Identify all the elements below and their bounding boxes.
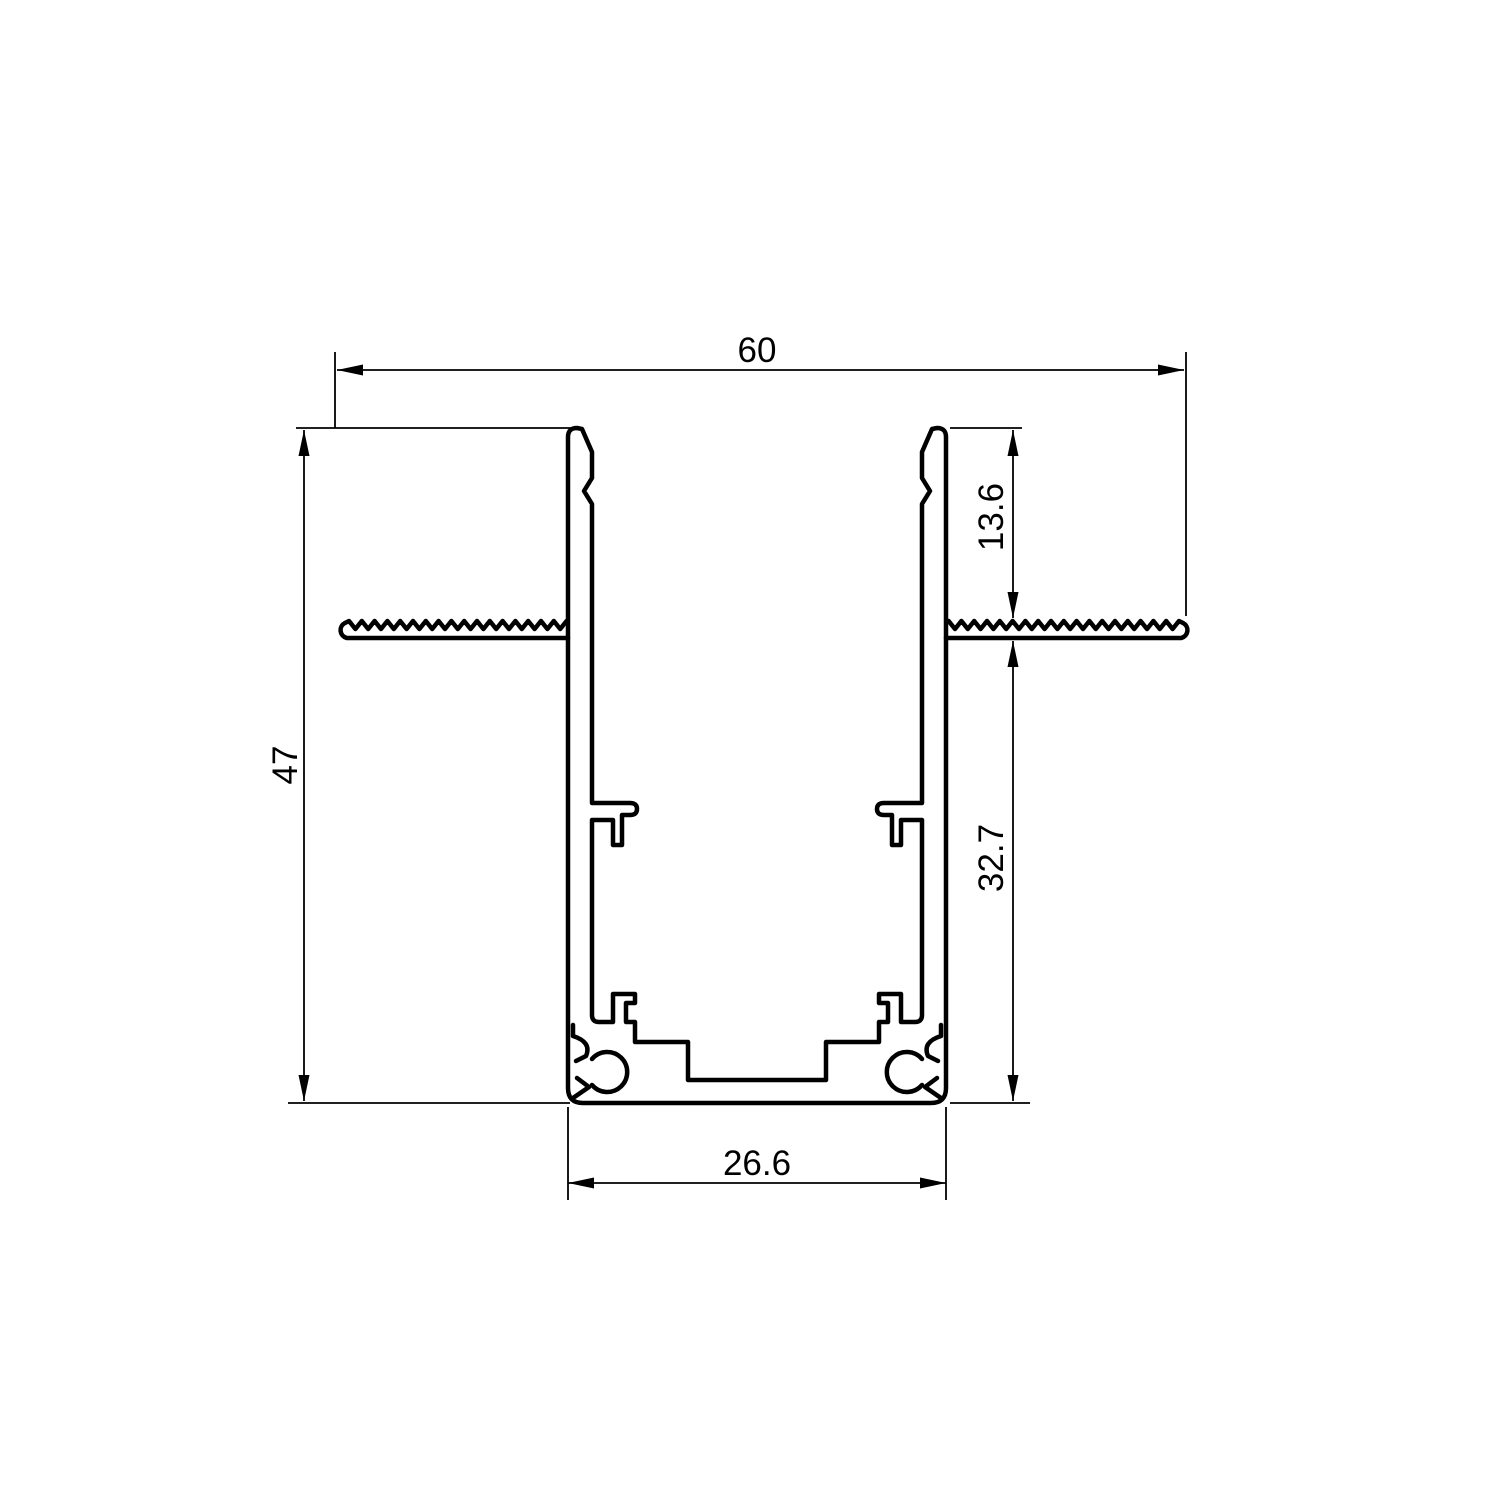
right-screw-boss-circle bbox=[887, 1052, 922, 1092]
dimension-base-width: 26.6 bbox=[568, 1107, 946, 1200]
arrow-left bbox=[337, 365, 363, 376]
dimension-flange-depth: 13.6 bbox=[950, 428, 1022, 618]
arrow-right bbox=[920, 1178, 946, 1189]
channel-body-outline bbox=[568, 428, 946, 1103]
left-screw-boss-lower-lip bbox=[573, 1078, 589, 1098]
left-screw-boss bbox=[573, 1025, 627, 1098]
dimension-body-depth: 32.7 bbox=[950, 641, 1030, 1103]
right-screw-boss bbox=[887, 1025, 941, 1098]
arrow-top bbox=[299, 430, 310, 456]
dim-overall-height-label: 47 bbox=[266, 746, 305, 785]
arrow-top bbox=[1008, 430, 1019, 456]
drawing-canvas: 60 47 13.6 32.7 bbox=[0, 0, 1500, 1500]
right-screw-boss-lower-lip bbox=[925, 1078, 941, 1098]
arrow-bottom bbox=[299, 1075, 310, 1101]
dimension-overall-height: 47 bbox=[266, 428, 572, 1103]
profile-outline bbox=[341, 428, 1188, 1103]
dim-body-depth-label: 32.7 bbox=[972, 824, 1011, 892]
dim-base-width-label: 26.6 bbox=[723, 1144, 791, 1183]
right-screw-boss-upper-lip bbox=[927, 1025, 941, 1061]
arrow-bottom bbox=[1008, 592, 1019, 618]
left-flange-serrated bbox=[341, 621, 568, 638]
arrow-left bbox=[568, 1178, 594, 1189]
arrow-top bbox=[1008, 641, 1019, 667]
arrow-bottom bbox=[1008, 1075, 1019, 1101]
dim-flange-depth-label: 13.6 bbox=[972, 483, 1011, 551]
left-screw-boss-circle bbox=[592, 1052, 627, 1092]
dim-overall-width-label: 60 bbox=[738, 331, 777, 370]
dimension-overall-width: 60 bbox=[335, 331, 1186, 616]
left-screw-boss-upper-lip bbox=[573, 1025, 587, 1061]
right-flange-serrated bbox=[946, 621, 1187, 638]
arrow-right bbox=[1158, 365, 1184, 376]
profile-cross-section-drawing: 60 47 13.6 32.7 bbox=[0, 0, 1500, 1500]
